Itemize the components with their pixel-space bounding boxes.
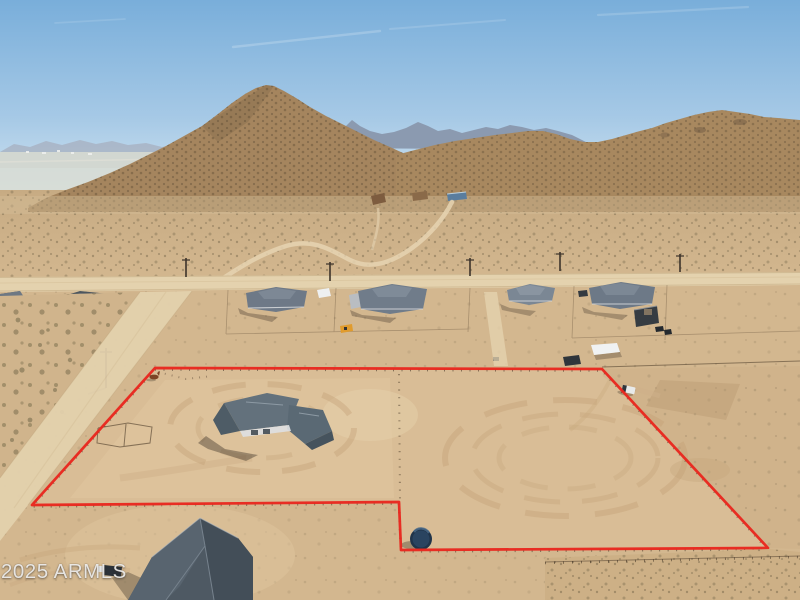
scene-canvas bbox=[0, 0, 800, 600]
foothill-haze bbox=[0, 196, 800, 214]
dark-truck bbox=[578, 290, 588, 297]
aerial-property-photo: 2025 ARMLS bbox=[0, 0, 800, 600]
